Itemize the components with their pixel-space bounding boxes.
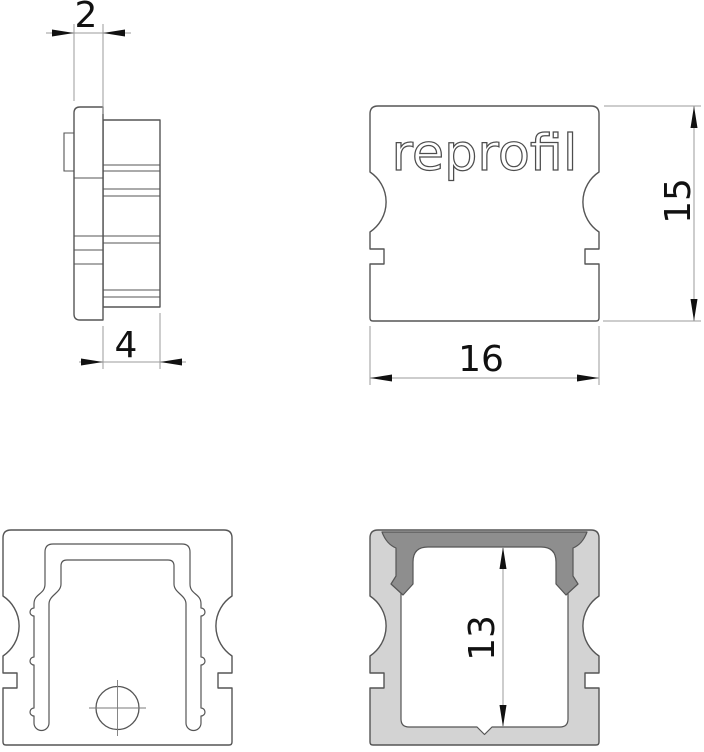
side-view-tab (64, 133, 74, 171)
dim-label-16: 16 (458, 339, 504, 380)
front-view: reprofil (370, 106, 599, 321)
dim-label-2: 2 (75, 0, 98, 36)
side-view (64, 107, 160, 320)
end-cap-drawing: 2 4 reprofil 15 16 (0, 0, 704, 752)
back-view (3, 530, 232, 745)
dim-label-13: 13 (462, 615, 503, 661)
dimension-height: 15 (603, 106, 701, 321)
side-view-body (103, 120, 160, 307)
technical-drawing-canvas: 2 4 reprofil 15 16 (0, 0, 704, 752)
dimension-cap-depth: 4 (79, 313, 186, 369)
dim-label-4: 4 (115, 325, 138, 366)
dimension-width: 16 (370, 326, 599, 385)
dim-label-15: 15 (658, 178, 699, 224)
dimension-flange-thickness: 2 (46, 0, 131, 114)
reprofil-logo: reprofil (392, 124, 578, 182)
side-view-flange (74, 107, 103, 320)
